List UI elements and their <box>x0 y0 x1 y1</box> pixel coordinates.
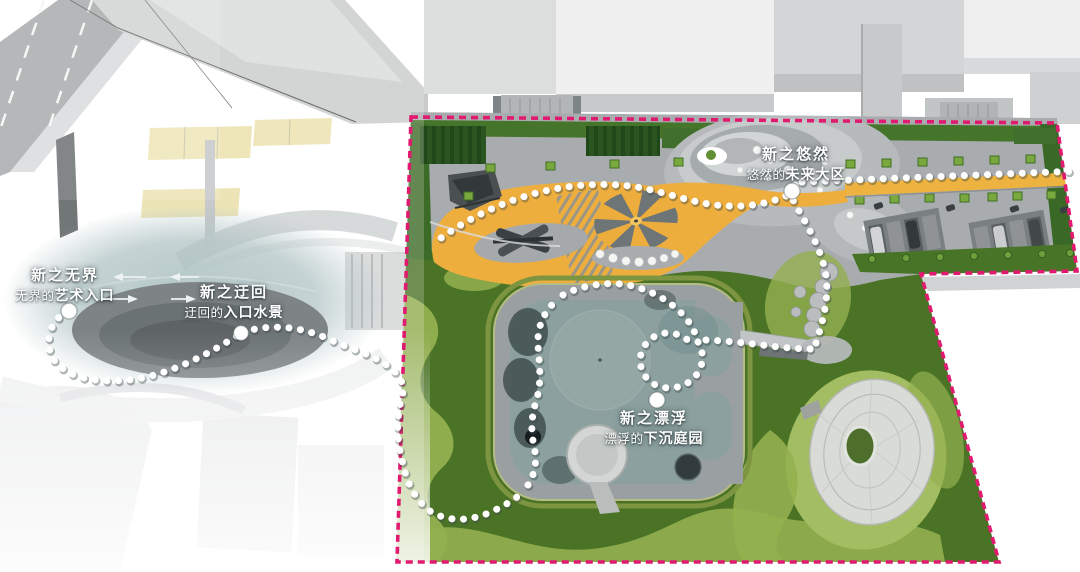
tree-row <box>586 126 660 156</box>
island-plant <box>706 150 716 160</box>
tree-row <box>420 126 486 164</box>
masterplan-canvas <box>0 0 1080 572</box>
masterplan-rendering: 新之无界 无界的艺术入口 新之迂回 迂回的入口水景 新之悠然 悠然的未来大区 新… <box>0 0 1080 572</box>
sunken-pool-garden <box>488 278 750 514</box>
fade-overlays <box>0 0 430 572</box>
outside-shadow-strip <box>921 274 1080 291</box>
